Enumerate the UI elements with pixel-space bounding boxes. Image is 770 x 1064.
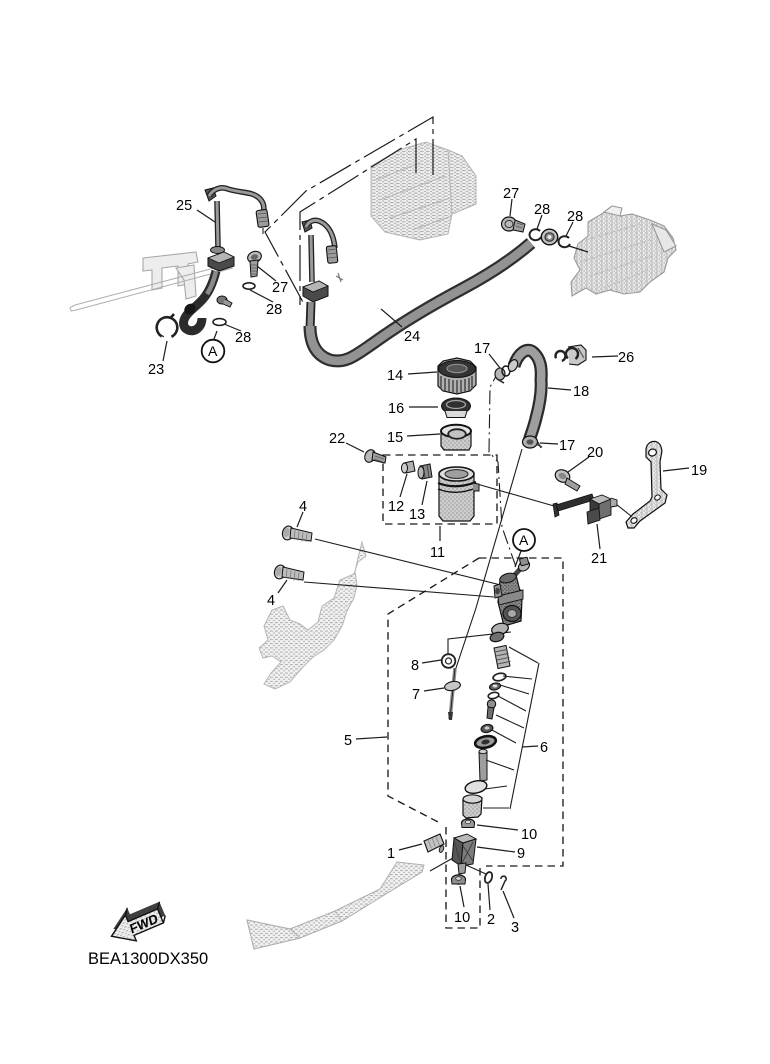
svg-text:1: 1 [387, 846, 395, 862]
svg-text:11: 11 [430, 545, 445, 561]
svg-text:24: 24 [404, 329, 420, 345]
svg-text:20: 20 [587, 445, 603, 461]
svg-text:23: 23 [148, 362, 164, 378]
svg-text:8: 8 [411, 658, 419, 674]
svg-text:A: A [208, 343, 218, 359]
svg-text:28: 28 [235, 330, 251, 346]
svg-text:7: 7 [412, 687, 420, 703]
svg-text:26: 26 [618, 350, 634, 366]
svg-text:28: 28 [534, 202, 550, 218]
svg-text:13: 13 [409, 507, 425, 523]
svg-text:15: 15 [387, 430, 403, 446]
svg-text:17: 17 [559, 438, 575, 454]
svg-text:25: 25 [176, 198, 192, 214]
svg-text:19: 19 [691, 463, 707, 479]
svg-text:28: 28 [266, 302, 282, 318]
svg-text:16: 16 [388, 401, 404, 417]
svg-text:9: 9 [517, 846, 525, 862]
svg-text:14: 14 [387, 368, 403, 384]
svg-text:3: 3 [511, 920, 519, 936]
svg-text:28: 28 [567, 209, 583, 225]
svg-text:10: 10 [454, 910, 470, 926]
svg-text:27: 27 [503, 186, 519, 202]
svg-text:18: 18 [573, 384, 589, 400]
svg-text:12: 12 [388, 499, 404, 515]
svg-text:21: 21 [591, 551, 607, 567]
svg-text:4: 4 [267, 593, 275, 609]
svg-text:27: 27 [272, 280, 288, 296]
svg-text:6: 6 [540, 740, 548, 756]
svg-text:22: 22 [329, 431, 345, 447]
svg-text:A: A [519, 532, 529, 548]
svg-text:17: 17 [474, 341, 490, 357]
svg-text:4: 4 [299, 499, 307, 515]
svg-text:5: 5 [344, 733, 352, 749]
svg-text:BEA1300DX350: BEA1300DX350 [88, 950, 208, 968]
svg-text:10: 10 [521, 827, 537, 843]
svg-text:2: 2 [487, 912, 495, 928]
